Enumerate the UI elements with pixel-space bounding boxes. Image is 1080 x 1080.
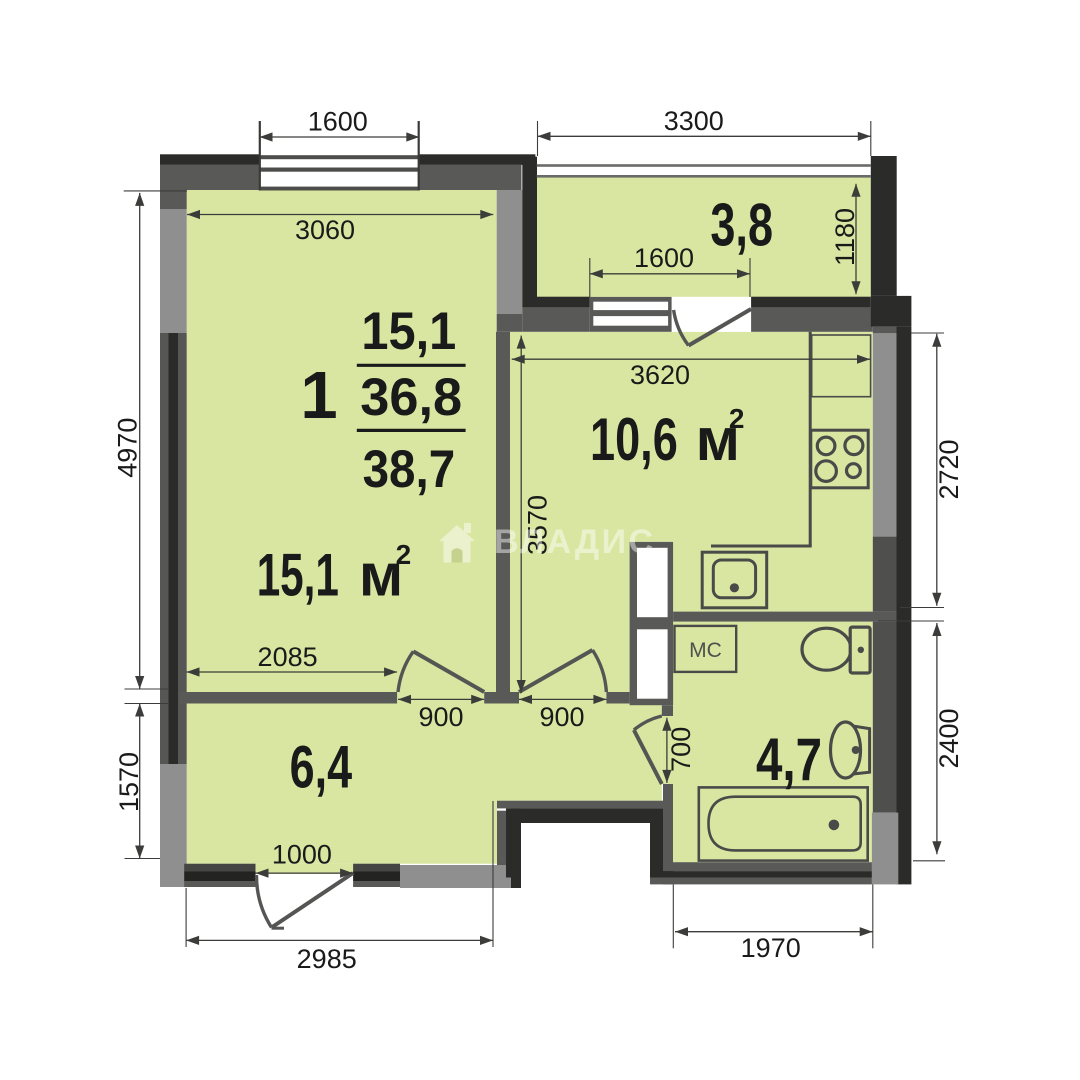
svg-text:3300: 3300: [664, 106, 724, 136]
svg-text:6,4: 6,4: [290, 734, 353, 801]
svg-text:2085: 2085: [258, 642, 318, 672]
svg-text:10,6: 10,6: [590, 406, 678, 473]
svg-text:2400: 2400: [934, 708, 964, 768]
svg-text:1000: 1000: [272, 840, 332, 870]
svg-text:1970: 1970: [741, 933, 801, 963]
svg-text:2: 2: [729, 403, 745, 434]
svg-text:1180: 1180: [830, 208, 860, 266]
svg-text:3620: 3620: [630, 360, 690, 390]
svg-text:4970: 4970: [113, 418, 143, 478]
svg-text:3060: 3060: [295, 215, 355, 245]
svg-text:700: 700: [666, 727, 696, 772]
svg-text:2720: 2720: [934, 439, 964, 499]
svg-text:15,1: 15,1: [361, 302, 456, 361]
svg-text:2985: 2985: [297, 944, 357, 974]
svg-text:4,7: 4,7: [756, 726, 822, 793]
svg-text:3,8: 3,8: [710, 192, 773, 259]
svg-text:900: 900: [418, 702, 463, 732]
svg-text:36,8: 36,8: [360, 368, 462, 427]
svg-text:1600: 1600: [308, 107, 368, 137]
svg-text:1600: 1600: [634, 243, 694, 273]
svg-text:2: 2: [396, 539, 412, 570]
svg-text:1: 1: [300, 358, 337, 433]
svg-text:38,7: 38,7: [363, 440, 456, 499]
svg-text:МС: МС: [689, 639, 722, 662]
svg-text:ВЛАДИС: ВЛАДИС: [494, 523, 656, 561]
svg-text:15,1: 15,1: [257, 542, 339, 609]
svg-text:900: 900: [539, 702, 584, 732]
svg-text:1570: 1570: [114, 752, 144, 812]
